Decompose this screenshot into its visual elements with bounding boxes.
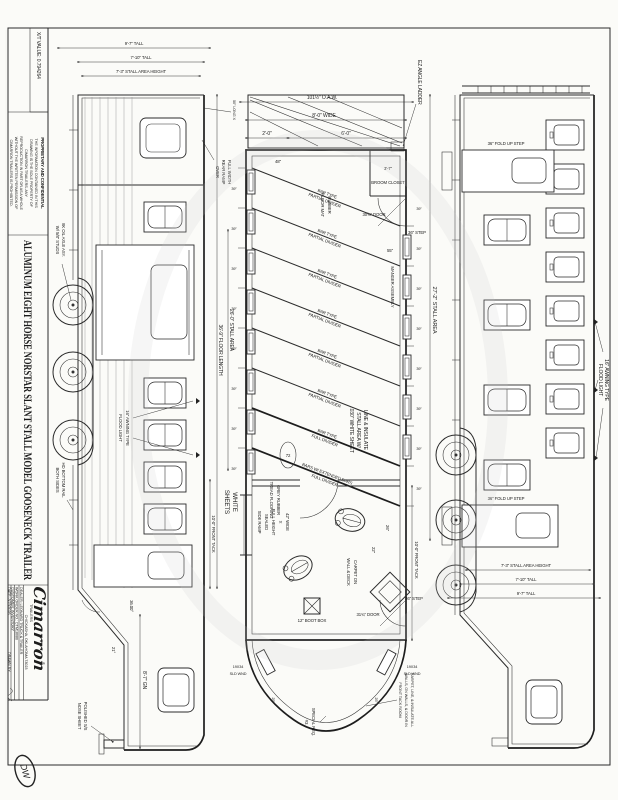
- dim-55: 55": [387, 248, 394, 253]
- dim-7-10-tall: 7'-10" TALL: [131, 55, 153, 60]
- side-ramp-label3: FULL HEIGHT: [271, 509, 276, 536]
- prop-line: CIMARRON TRAILERS IS PROHIBITED.: [9, 140, 13, 207]
- white-sheets2: SHEETS: [223, 490, 230, 514]
- angle-36: 36.00°: [129, 600, 134, 612]
- side-ramp-label2: X: [278, 521, 283, 524]
- curb-height-dims: 7'-3" STALL AREA HEIGHT 7'-10" TALL 9'-7…: [448, 563, 600, 598]
- carpet-note2: WALLS, GN WALLS, & DOOR IN: [404, 673, 408, 727]
- dealer-row: DEALER: LEONARD TRUCK & TRAILER: [19, 587, 23, 655]
- plan-side-ramp: 42" WIDE X FULL HEIGHT SEALED SIDE RAMP: [240, 495, 290, 555]
- dim-26-0-stall: 26'-0" STALL AREA: [228, 309, 234, 352]
- dim-39in: 39": [416, 327, 422, 331]
- prop-line: WITHOUT THE WRITTEN PERMISSION OF: [14, 137, 18, 210]
- nose2: NOSE SHEET: [77, 703, 82, 730]
- nose-sheet-note: POLISHED S/S NOSE SHEET: [77, 702, 113, 742]
- insulate-note2: STALL AREA W/: [355, 412, 361, 448]
- slider-window-size: 19X34: [233, 665, 243, 669]
- dim-39in: 39": [231, 227, 237, 231]
- dim-39in: 39": [416, 447, 422, 451]
- ez-ladder-label: EZ ANGLE LADDER: [416, 60, 422, 105]
- logo-subtext: TRAILERS: [29, 604, 33, 622]
- xt-value: X/T VALUE: 0.794264: [35, 32, 41, 79]
- front-tack-dim: 10'-0" FRONT TACK: [414, 541, 419, 579]
- cimarron-logo: Cimarron: [30, 585, 49, 672]
- ez-ladder: [462, 86, 590, 93]
- curb-bottom-rail: [452, 95, 460, 615]
- street-rear-panel: [78, 118, 204, 185]
- rail2: BOTH SIDES: [55, 467, 60, 492]
- side-ramp-label1: 42" WIDE: [285, 513, 290, 531]
- carpet-wall-deck1: CARPET ON: [353, 560, 358, 584]
- dim-39in: 39": [231, 267, 237, 271]
- special-req-label: SPECIAL REQ.: [311, 708, 316, 737]
- dim-39in: 39": [416, 287, 422, 291]
- nose1: POLISHED S/S: [83, 702, 88, 731]
- dim-39in: 39": [416, 407, 422, 411]
- logo-text: Cimarron: [30, 585, 49, 672]
- curb-rear-door: [442, 150, 554, 192]
- title-block: X/T VALUE: 0.794264 PROPRIETARY AND CONF…: [7, 28, 49, 701]
- tread-floor1: GREY RUBBER: [276, 485, 281, 515]
- angle-21: 21°: [111, 647, 116, 654]
- carpet-note1: CARPET, LINE, & INSULATE ALL: [410, 673, 414, 727]
- dim-7-10-tall: 7'-10" TALL: [516, 577, 538, 582]
- handwritten-initials: DW: [11, 753, 38, 789]
- rubber-mat-label: RUBBER: [327, 196, 332, 213]
- dim-39in: 39": [231, 187, 237, 191]
- dim-25: 25": [271, 697, 275, 703]
- door-31-label: 31¾" DOOR: [356, 612, 379, 617]
- fold-up-step-label: 36" FOLD UP STEP: [488, 141, 525, 146]
- plan-rear-curb-door: 30⅝" DOOR 36" STEP: [362, 198, 426, 235]
- dim-8ft-wide: 8'-0" WIDE: [312, 113, 336, 119]
- dim-39in: 39": [416, 207, 422, 211]
- dim-39in: 39": [231, 387, 237, 391]
- white-sheets1: WHITE: [231, 492, 238, 511]
- manger-label: MANGER ASSEMBLY: [390, 266, 395, 307]
- rubber-mat-label2: FLOOR MAT: [320, 193, 325, 217]
- street-bottom-rail: [69, 95, 78, 590]
- special-note: CARPET, LINE, & INSULATE ALL WALLS, GN W…: [304, 673, 414, 736]
- dim-27-2-stall-area: 27'-2" STALL AREA: [431, 286, 437, 333]
- dim-8-7-gn: 8'-7" GN: [141, 671, 147, 690]
- dim-26: 26": [385, 525, 390, 532]
- dim-9-7-tall: 9'-7" TALL: [517, 591, 536, 596]
- scanned-drawing-page: 16" AWNING TYPE FLOOD LIGHT 36" FOLD UP …: [0, 0, 618, 800]
- side-ramp-label4: SEALED: [264, 514, 269, 530]
- drawing-sheet: 16" AWNING TYPE FLOOD LIGHT 36" FOLD UP …: [0, 0, 618, 800]
- drawn-by-label: DRAWN BY:: [7, 652, 11, 672]
- dim-72: 72: [286, 453, 291, 458]
- prop-line: DRAWING IS THE SOLE PROPERTY OF: [29, 139, 33, 207]
- curb-side-elevation: 16" AWNING TYPE FLOOD LIGHT 36" FOLD UP …: [430, 86, 609, 748]
- axle-note: 8K OIL AXLE ASY. W/ 5/8" STUDS: [55, 223, 71, 300]
- step-36-label: 36" STEP: [408, 230, 426, 235]
- axle2: W/ 5/8" STUDS: [55, 226, 60, 255]
- dim-stall-height: 7'-3" STALL AREA HEIGHT: [116, 69, 166, 74]
- street-flood2: FLOOD LIGHT: [118, 414, 123, 442]
- dim-front-tack: 10'-0" FRONT TACK: [211, 515, 216, 553]
- prop-line: REPRODUCTION IN PART OR AS A WHOLE: [19, 136, 23, 210]
- special-req-num: #3: [304, 720, 309, 725]
- slider-window-label: SLD WND: [230, 672, 247, 676]
- carpet-note3: FRONT TACK ROOM: [398, 682, 402, 717]
- axle1: 8K OIL AXLE ASY.: [61, 223, 66, 257]
- proprietary-title: PROPRIETARY AND CONFIDENTIAL: [40, 137, 45, 209]
- slider-window-size: 19X34: [407, 665, 417, 669]
- dim-48: 48": [275, 159, 282, 164]
- drawing-title: ALUMINUM EIGHT HORSE NORSTAR SLANT STALL…: [21, 240, 35, 580]
- stall-dividers: [252, 168, 400, 506]
- side-ramp-label5: SIDE RAMP: [257, 511, 262, 534]
- dim-39in: 39": [231, 467, 237, 471]
- dim-39in: 39": [416, 367, 422, 371]
- dim-22: 22": [371, 547, 376, 554]
- street-height-dims: 9'-7" TALL 7'-10" TALL 7'-3" STALL AREA …: [58, 41, 210, 76]
- dim-50-long: 50" LONG X: [232, 100, 236, 121]
- logo-registered: ®: [41, 662, 45, 665]
- boot-box-label: 12" BOOT BOX: [298, 618, 327, 623]
- dim-2ft: 2'-0": [262, 131, 272, 137]
- bottom-rail-note: HD BOTTOM RAIL BOTH SIDES: [55, 462, 73, 510]
- rail1: HD BOTTOM RAIL: [61, 462, 66, 498]
- insulate-note3: .030" WHITE SHEET: [348, 407, 354, 452]
- work-order-row: WORK ORDER NO.: CTM18080: [15, 587, 19, 640]
- dim-39in: 39": [231, 427, 237, 431]
- dim-36-9-floor: 36'-9" FLOOR LENGTH: [217, 324, 223, 376]
- date-row: DATE: 3/19/2026: [7, 587, 11, 614]
- customer-row: CUSTOMER: INVENTORY: [11, 587, 15, 631]
- carpet-wall-deck2: WALL & DECK: [346, 558, 351, 586]
- gn-coupler: [99, 734, 124, 754]
- company-city: CHICKASHA, OKLAHOMA 73023: [24, 615, 28, 670]
- curb-floodlight-label: 16" AWNING TYPE: [603, 359, 609, 401]
- insulate-note1: LINE & INSULATE: [362, 410, 368, 451]
- dim-25: 25": [374, 697, 378, 703]
- dim-9-7-tall: 9'-7" TALL: [125, 41, 144, 46]
- prop-line: THE INFORMATION CONTAINED IN THIS: [34, 138, 38, 208]
- landscape-canvas: 16" AWNING TYPE FLOOD LIGHT 36" FOLD UP …: [0, 0, 618, 800]
- drawn-by-signature: [8, 688, 13, 701]
- dim-stall-height: 7'-3" STALL AREA HEIGHT: [501, 563, 551, 568]
- dim-39in: 39": [416, 247, 422, 251]
- stall-width-dims: 39" 39" 39" 39" 39" 39" 39" 39" 39" 39" …: [231, 168, 422, 506]
- prop-line: CIMARRON TRAILERS. ANY: [24, 149, 28, 197]
- dim-39in: 39": [416, 487, 422, 491]
